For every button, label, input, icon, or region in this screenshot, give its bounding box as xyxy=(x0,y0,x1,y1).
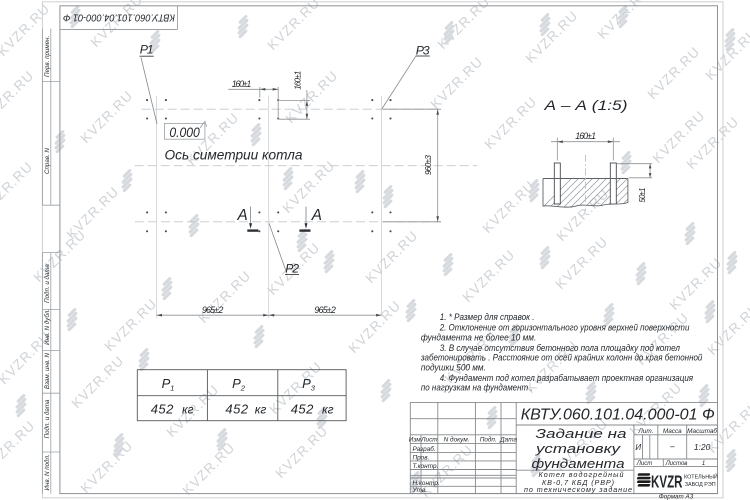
svg-text:КВТУ.060.101.04.000-01 Ф: КВТУ.060.101.04.000-01 Ф xyxy=(63,12,175,24)
svg-text:160±1: 160±1 xyxy=(575,131,596,141)
svg-text:KVZR: KVZR xyxy=(651,472,683,492)
svg-text:Ось симетрии котла: Ось симетрии котла xyxy=(165,147,303,163)
svg-text:Лит.: Лит. xyxy=(637,428,653,435)
svg-text:Справ. N: Справ. N xyxy=(44,148,51,174)
svg-text:965±2: 965±2 xyxy=(202,305,224,315)
svg-text:А: А xyxy=(237,207,248,224)
svg-text:КОТЕЛЬНЫЙ: КОТЕЛЬНЫЙ xyxy=(684,473,718,481)
svg-text:Дата: Дата xyxy=(499,437,517,444)
svg-text:подушки 500 мм.: подушки 500 мм. xyxy=(421,363,486,373)
svg-text:160±1: 160±1 xyxy=(293,71,302,90)
svg-text:160±1: 160±1 xyxy=(232,79,252,89)
svg-text:ЗАВОД РЭП: ЗАВОД РЭП xyxy=(685,482,716,488)
svg-text:Пров.: Пров. xyxy=(413,454,430,461)
svg-text:по нагрузкам на фундамент .: по нагрузкам на фундамент . xyxy=(421,383,533,393)
svg-text:P3: P3 xyxy=(416,44,430,58)
svg-text:кг: кг xyxy=(182,402,194,416)
svg-text:Лист: Лист xyxy=(636,461,652,467)
svg-text:А – А (1:5): А – А (1:5) xyxy=(543,98,627,113)
svg-text:Взам. инв. N: Взам. инв. N xyxy=(44,352,51,389)
svg-text:3. В случае отсутствия бетонн: 3. В случае отсутствия бетонного пола пл… xyxy=(440,343,681,353)
svg-text:Н.контр.: Н.контр. xyxy=(413,480,440,487)
svg-text:P2: P2 xyxy=(285,261,299,275)
svg-text:2. Отклонение от горизонтальн: 2. Отклонение от горизонтального уровня … xyxy=(439,322,690,332)
svg-text:960±3: 960±3 xyxy=(424,155,433,175)
svg-text:50±1: 50±1 xyxy=(638,188,647,203)
svg-text:452: 452 xyxy=(291,401,314,416)
svg-text:Подп. и дата: Подп. и дата xyxy=(44,264,51,303)
svg-text:Масса: Масса xyxy=(663,428,682,435)
svg-text:КВТУ.060.101.04.000-01 Ф: КВТУ.060.101.04.000-01 Ф xyxy=(521,406,715,423)
svg-text:Подп. и дата: Подп. и дата xyxy=(44,399,51,438)
svg-text:Подп.: Подп. xyxy=(480,436,497,444)
svg-text:452: 452 xyxy=(225,401,248,416)
svg-text:1. * Размер для справок .: 1. * Размер для справок . xyxy=(440,312,535,322)
svg-text:1:20: 1:20 xyxy=(694,442,711,452)
svg-text:установку: установку xyxy=(535,441,622,456)
svg-text:И: И xyxy=(635,443,641,452)
svg-text:N докум.: N докум. xyxy=(444,436,470,444)
svg-text:Масштаб: Масштаб xyxy=(687,427,717,435)
svg-text:кг: кг xyxy=(255,402,267,416)
svg-text:4. Фундамент под котел разраб: 4. Фундамент под котел разрабатывает про… xyxy=(440,373,693,383)
svg-text:452: 452 xyxy=(151,401,174,416)
svg-text:А: А xyxy=(311,207,322,224)
svg-text:Т.контр.: Т.контр. xyxy=(413,463,439,470)
svg-text:Лист: Лист xyxy=(420,437,438,444)
svg-text:Формат А3: Формат А3 xyxy=(659,493,694,500)
svg-text:кг: кг xyxy=(322,402,334,416)
svg-text:965±2: 965±2 xyxy=(314,305,336,315)
svg-text:1: 1 xyxy=(702,461,705,467)
svg-text:Инв. N подл.: Инв. N подл. xyxy=(44,454,51,490)
svg-text:Листов: Листов xyxy=(665,461,688,467)
svg-text:Утв.: Утв. xyxy=(412,487,428,494)
svg-text:Инв. N дубл.: Инв. N дубл. xyxy=(44,309,51,345)
svg-text:фундамента не более 10 мм.: фундамента не более 10 мм. xyxy=(421,333,536,343)
svg-text:P1: P1 xyxy=(140,43,154,57)
svg-text:–: – xyxy=(669,442,675,451)
svg-text:Разраб.: Разраб. xyxy=(413,445,436,453)
svg-text:фундамента: фундамента xyxy=(532,456,625,471)
svg-text:забетонировать . Расстояние о: забетонировать . Расстояние от осей край… xyxy=(420,353,702,363)
svg-text:0.000: 0.000 xyxy=(169,124,200,140)
svg-text:по техническому задание: по техническому задание xyxy=(524,485,632,494)
svg-text:Перв. примен.: Перв. примен. xyxy=(44,36,51,77)
svg-text:Задание на: Задание на xyxy=(536,426,627,441)
